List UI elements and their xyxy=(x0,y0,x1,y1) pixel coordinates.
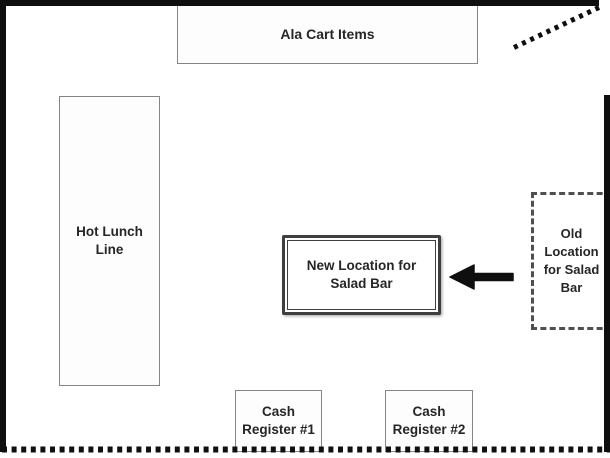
cash-register-1-label-2: Register #1 xyxy=(242,421,315,439)
wall-top xyxy=(0,0,599,6)
cash-register-1-label-1: Cash xyxy=(262,403,295,421)
old-location-label-2: Location xyxy=(544,243,598,261)
ala-cart-items-box: Ala Cart Items xyxy=(177,5,478,64)
cash-register-1-box: Cash Register #1 xyxy=(235,390,322,452)
hot-lunch-line-label-2: Line xyxy=(96,241,124,259)
ala-cart-items-label: Ala Cart Items xyxy=(280,25,374,43)
new-location-label-1: New Location for xyxy=(307,257,417,275)
new-location-label-2: Salad Bar xyxy=(330,275,392,293)
hot-lunch-line-box: Hot Lunch Line xyxy=(59,96,160,386)
old-location-label-1: Old xyxy=(561,225,583,243)
left-arrow-icon xyxy=(450,265,513,289)
old-location-label-4: Bar xyxy=(561,279,583,297)
old-location-label-3: for Salad xyxy=(544,261,600,279)
new-salad-bar-location-box: New Location for Salad Bar xyxy=(282,235,441,315)
wall-right xyxy=(604,95,610,452)
old-salad-bar-location-box: Old Location for Salad Bar xyxy=(531,192,610,330)
hot-lunch-line-label-1: Hot Lunch xyxy=(76,223,143,241)
cash-register-2-label-1: Cash xyxy=(412,403,445,421)
cash-register-2-box: Cash Register #2 xyxy=(385,390,473,452)
dotted-entrance-diagonal xyxy=(514,7,601,48)
cash-register-2-label-2: Register #2 xyxy=(393,421,466,439)
wall-left xyxy=(0,0,6,452)
new-salad-bar-location-inner-frame: New Location for Salad Bar xyxy=(287,240,436,310)
cafeteria-floor-plan: Ala Cart Items Hot Lunch Line New Locati… xyxy=(0,0,610,458)
